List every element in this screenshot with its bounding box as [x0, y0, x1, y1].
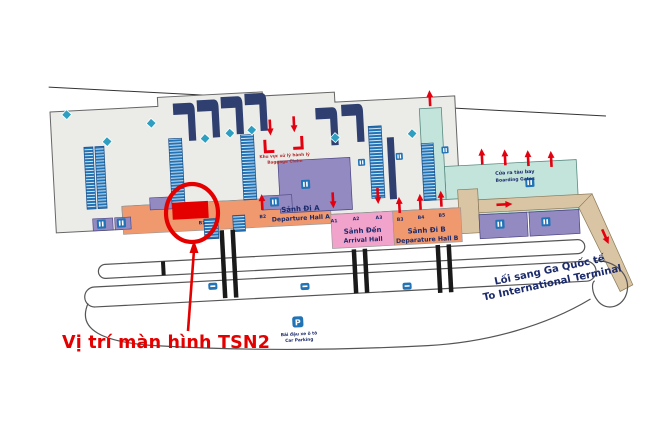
door-label-b2: B2 [259, 214, 266, 220]
door-label-a3: A3 [375, 215, 382, 221]
facility-icon [541, 217, 550, 226]
gate-room [529, 210, 580, 237]
terminal-floorplan-svg: P Bãi đậu xe ô tô Car Parking [0, 0, 654, 435]
bus-stop-icon [208, 283, 217, 290]
door-label-b4: B4 [418, 215, 425, 221]
crosswalk [161, 261, 166, 275]
door-label-a1: A1 [331, 218, 338, 224]
facility-icon [495, 219, 504, 228]
facility-icon [117, 218, 126, 227]
bus-stop-icon [402, 282, 411, 289]
tsn2-screen-marker [172, 201, 209, 220]
tsn2-caption: Vị trí màn hình TSN2 [62, 333, 270, 353]
facility-icon [301, 180, 310, 189]
parking-icon-letter: P [295, 318, 301, 327]
facility-icon [396, 153, 403, 160]
door-label-b3: B3 [397, 217, 404, 223]
facility-icon [441, 146, 448, 153]
facility-icon [270, 197, 279, 206]
terminal-building: P Bãi đậu xe ô tô Car Parking [49, 57, 636, 365]
airport-terminal-map: P Bãi đậu xe ô tô Car Parking [0, 0, 654, 435]
facility-icon [97, 219, 106, 228]
up-arrow [478, 148, 486, 164]
door-label-a2: A2 [352, 216, 359, 222]
facility-icon [358, 159, 365, 166]
car-parking: P Bãi đậu xe ô tô Car Parking [280, 315, 318, 344]
bus-stop-icon [300, 283, 309, 290]
door-label-b1: B1 [199, 220, 206, 226]
door-label-b5: B5 [438, 213, 445, 219]
